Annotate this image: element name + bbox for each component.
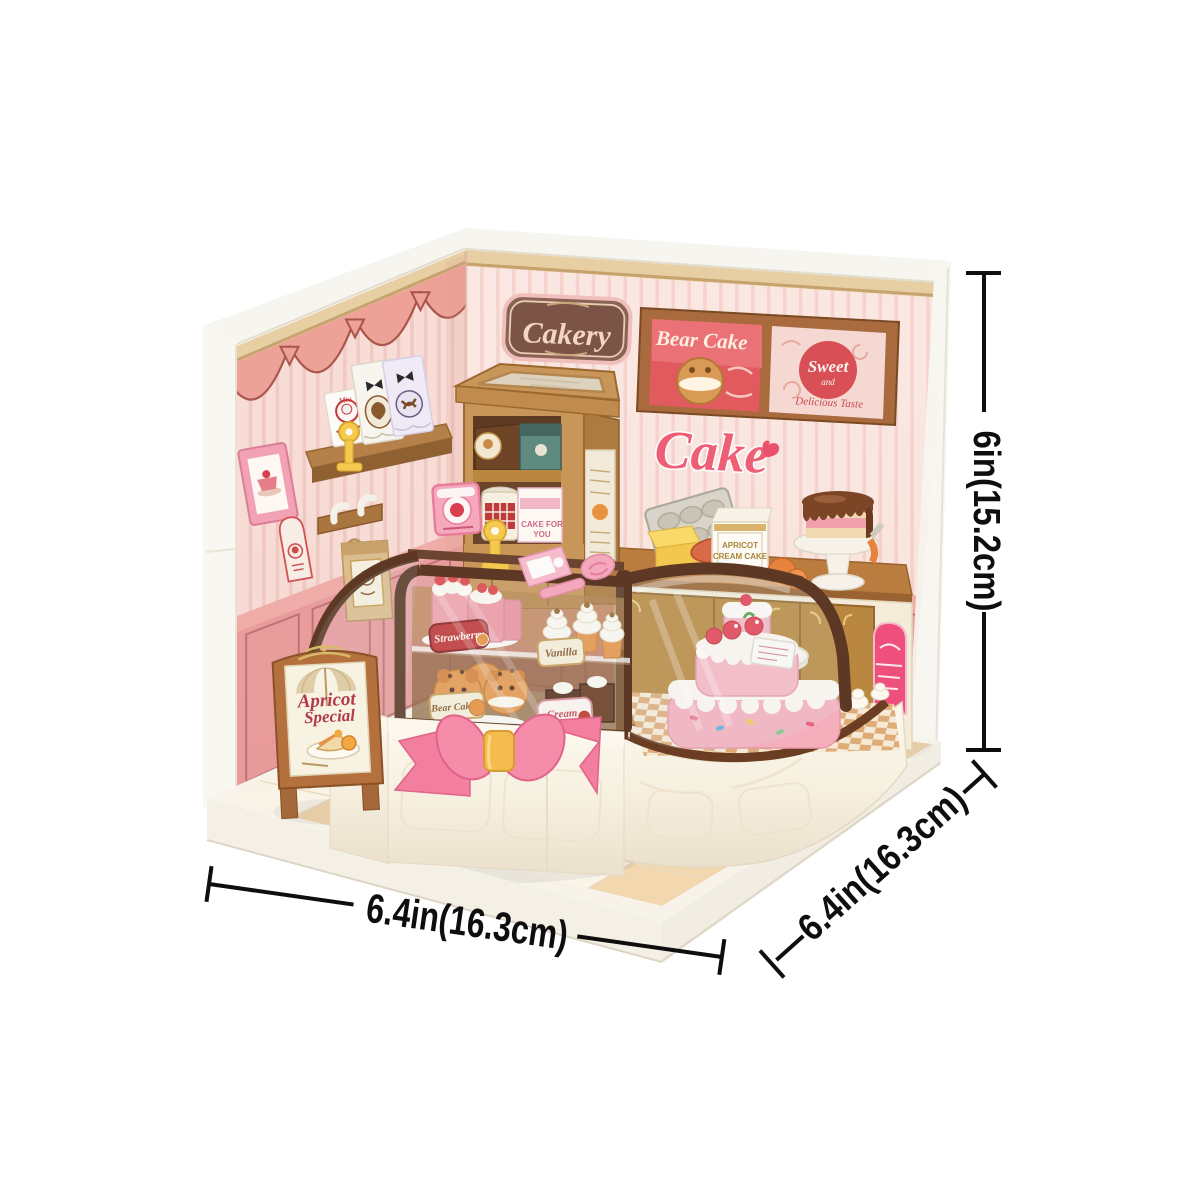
svg-text:YOU: YOU (533, 530, 551, 539)
svg-text:CREAM CAKE: CREAM CAKE (713, 552, 768, 561)
svg-text:6in(15.2cm): 6in(15.2cm) (965, 431, 1007, 612)
svg-text:CAKE FOR: CAKE FOR (521, 520, 563, 529)
svg-text:and: and (821, 377, 835, 387)
svg-text:Cakery: Cakery (522, 316, 612, 353)
svg-text:Bear Cake: Bear Cake (654, 326, 748, 355)
svg-text:Sweet: Sweet (808, 357, 850, 376)
svg-text:Cake: Cake (653, 419, 770, 485)
svg-text:Special: Special (304, 706, 356, 728)
svg-text:APRICOT: APRICOT (722, 541, 758, 550)
